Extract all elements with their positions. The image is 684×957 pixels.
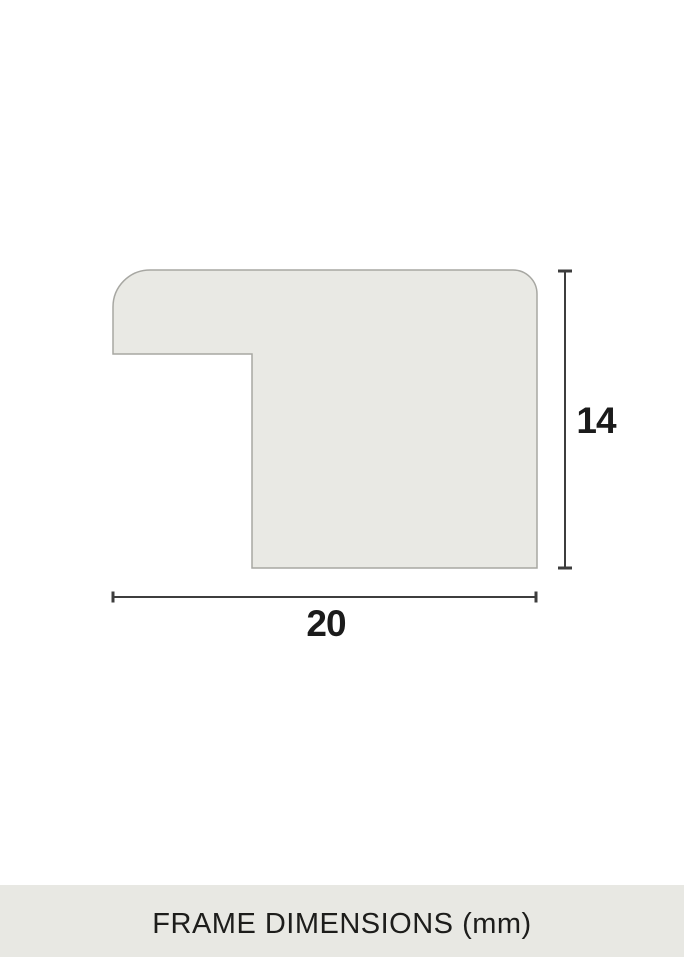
caption-bar: FRAME DIMENSIONS (mm) (0, 885, 684, 957)
width-dimension-label: 20 (306, 603, 346, 644)
caption-title: FRAME DIMENSIONS (mm) (152, 910, 531, 939)
height-dimension-label: 14 (576, 400, 617, 441)
page-background: 14 20 FRAME DIMENSIONS (mm) (0, 0, 684, 957)
width-dimension (113, 592, 536, 603)
frame-profile-diagram: 14 20 (0, 0, 684, 884)
frame-profile-shape (113, 270, 537, 568)
height-dimension (558, 271, 572, 568)
